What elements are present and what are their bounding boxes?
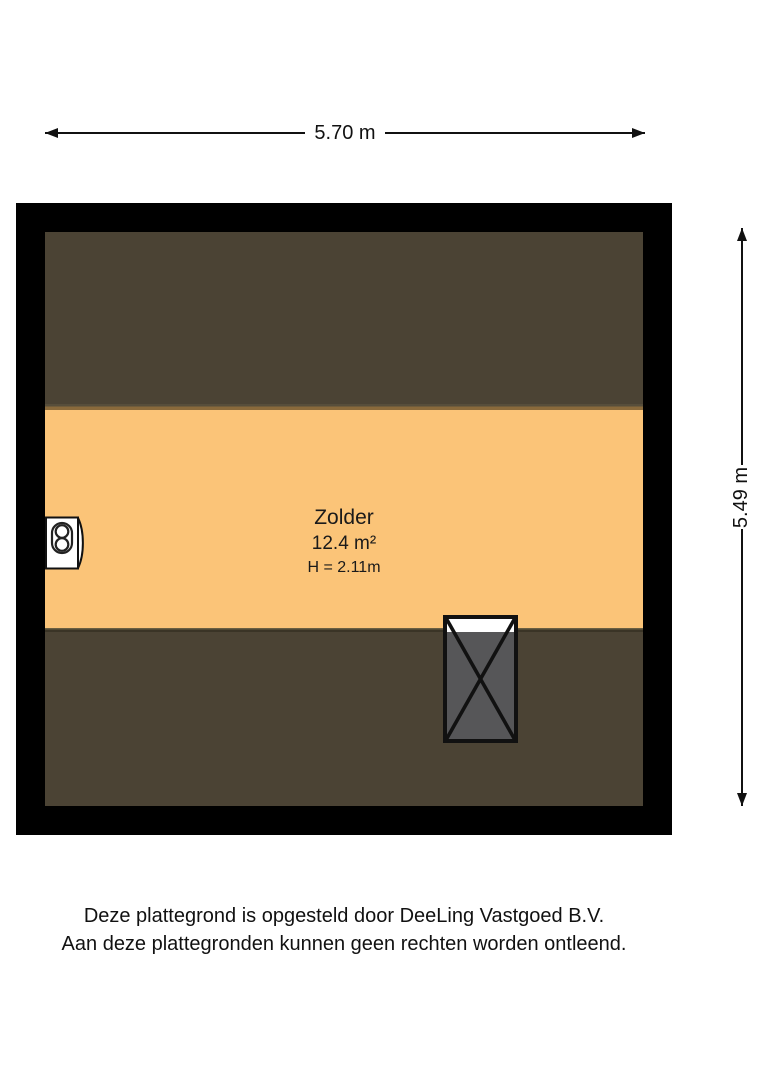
disclaimer-line-2: Aan deze plattegronden kunnen geen recht… xyxy=(16,930,672,958)
arrow-left-icon xyxy=(45,132,305,134)
floorplan-page: 5.70 m Zolder 12.4 m² H = 2.11m xyxy=(0,0,764,1080)
width-dimension-label: 5.70 m xyxy=(305,122,384,145)
arrow-up-icon xyxy=(741,228,743,465)
floorplan: Zolder 12.4 m² H = 2.11m xyxy=(16,203,672,835)
boiler-icon xyxy=(45,516,87,570)
room-label: Zolder 12.4 m² H = 2.11m xyxy=(45,504,643,579)
staircase-icon xyxy=(443,615,518,743)
room-ceiling-height: H = 2.11m xyxy=(45,557,643,579)
disclaimer: Deze plattegrond is opgesteld door DeeLi… xyxy=(16,902,672,958)
arrow-down-icon xyxy=(741,529,743,806)
floorplan-interior: Zolder 12.4 m² H = 2.11m xyxy=(45,232,643,806)
height-dimension-label: 5.49 m xyxy=(731,466,754,527)
width-dimension: 5.70 m xyxy=(45,121,645,145)
disclaimer-line-1: Deze plattegrond is opgesteld door DeeLi… xyxy=(16,902,672,930)
arrow-right-icon xyxy=(385,132,645,134)
height-dimension: 5.49 m xyxy=(729,228,755,806)
room-area: 12.4 m² xyxy=(45,531,643,557)
room-name: Zolder xyxy=(45,504,643,531)
sloped-ceiling-zone-top xyxy=(45,232,643,404)
sloped-ceiling-zone-bottom xyxy=(45,632,643,806)
